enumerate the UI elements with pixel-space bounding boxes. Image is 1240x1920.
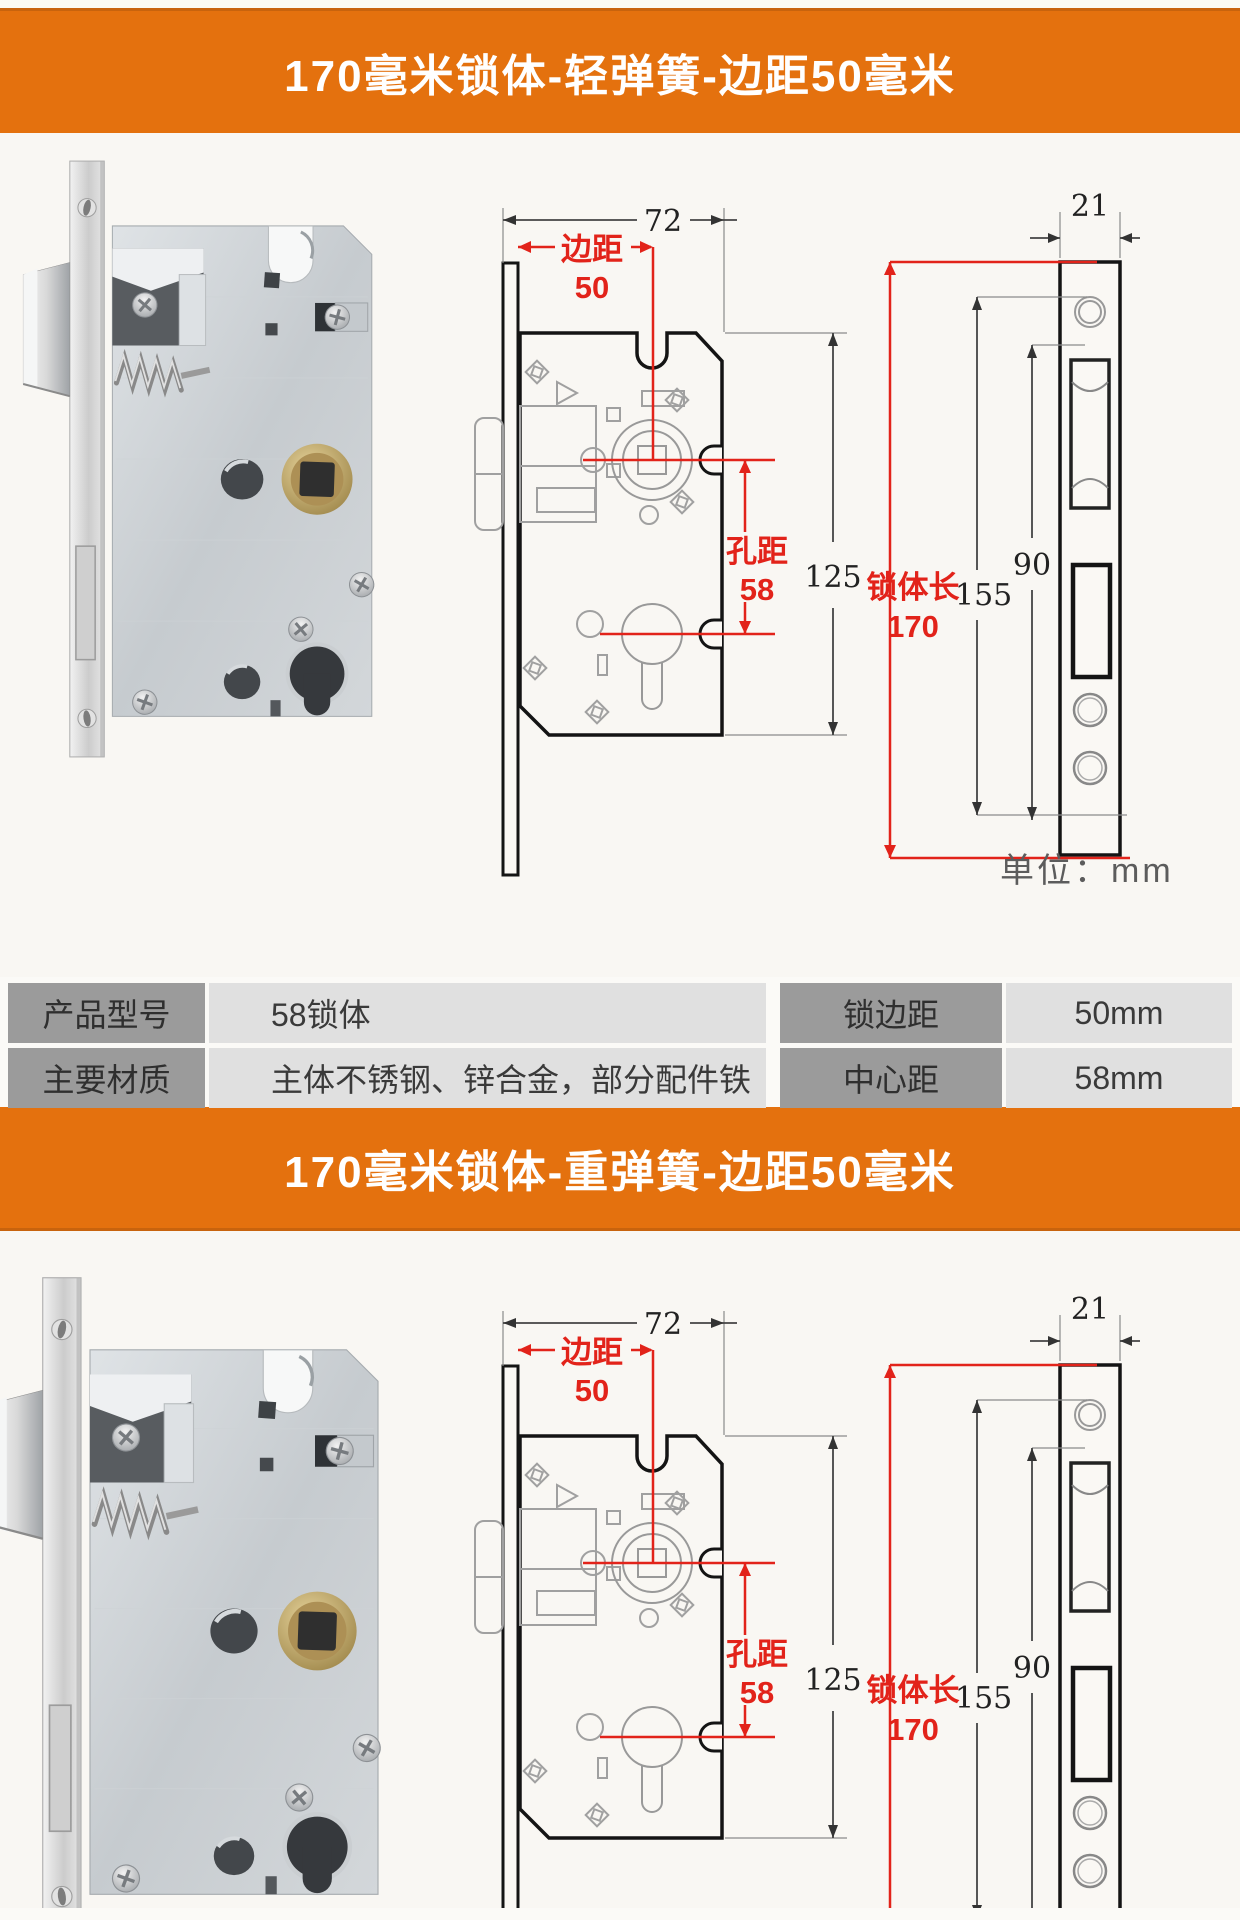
dim-hole-distance: 孔距 58 bbox=[583, 460, 788, 634]
cylinder-drawing bbox=[622, 1707, 682, 1812]
label-plate-length: 155 bbox=[955, 578, 1012, 613]
label-total-width: 72 bbox=[644, 1307, 682, 1342]
screw-hole-top-icon bbox=[78, 199, 96, 217]
label-body-height: 125 bbox=[804, 560, 861, 595]
section-title: 170毫米锁体-轻弹簧-边距50毫米 bbox=[284, 40, 956, 104]
screw-hole-top-icon bbox=[52, 1319, 72, 1339]
label-hole-value: 58 bbox=[740, 572, 774, 607]
latch-bolt bbox=[0, 1390, 43, 1539]
lock-body bbox=[112, 226, 378, 718]
banner-light-spring: 170毫米锁体-轻弹簧-边距50毫米 bbox=[0, 8, 1240, 133]
follower-hole bbox=[278, 1592, 357, 1671]
label-total-width: 72 bbox=[644, 204, 682, 239]
side-view: 21 锁体长 170 bbox=[867, 189, 1141, 858]
spec-value-edge-distance: 50mm bbox=[1006, 983, 1232, 1043]
banner-heavy-spring: 170毫米锁体-重弹簧-边距50毫米 bbox=[0, 1107, 1240, 1231]
label-edge-value: 50 bbox=[575, 270, 609, 305]
section-light-spring: 72 边距 50 bbox=[0, 133, 1240, 977]
label-plate-length: 155 bbox=[955, 1681, 1012, 1716]
label-body-length-value: 170 bbox=[887, 609, 939, 644]
label-plate-width: 21 bbox=[1071, 1292, 1109, 1327]
dim-plate-width: 21 bbox=[1030, 189, 1140, 258]
side-faceplate bbox=[1060, 1365, 1120, 1908]
spec-value-model: 58锁体 bbox=[209, 983, 766, 1043]
front-faceplate bbox=[503, 263, 518, 875]
deadbolt-slot bbox=[50, 1705, 71, 1831]
table-spacer bbox=[770, 1048, 776, 1108]
follower-hole bbox=[282, 444, 353, 515]
spec-value-material: 主体不锈钢、锌合金，部分配件铁 bbox=[209, 1048, 766, 1108]
label-body-length: 锁体长 bbox=[867, 570, 960, 605]
label-hole-span: 90 bbox=[1013, 1651, 1051, 1686]
label-hole: 孔距 bbox=[726, 534, 788, 569]
front-view: 72 边距 50 孔距 bbox=[475, 1307, 862, 1908]
screw-hole-bottom-icon bbox=[78, 709, 96, 727]
section-title: 170毫米锁体-重弹簧-边距50毫米 bbox=[284, 1136, 956, 1200]
spec-label-model: 产品型号 bbox=[8, 983, 205, 1043]
faceplate bbox=[70, 161, 104, 757]
spindle-hole bbox=[210, 1609, 257, 1654]
label-edge: 边距 bbox=[561, 1335, 623, 1370]
side-view: 21 锁体长 170 15 bbox=[867, 1292, 1141, 1908]
front-body-outline bbox=[520, 333, 722, 735]
spec-table: 产品型号 58锁体 锁边距 50mm 主要材质 主体不锈钢、锌合金，部分配件铁 … bbox=[0, 977, 1240, 1107]
label-body-length: 锁体长 bbox=[867, 1673, 960, 1708]
lock-product-photo bbox=[15, 155, 380, 763]
lock-product-photo bbox=[0, 1271, 387, 1908]
faceplate bbox=[43, 1278, 81, 1908]
dim-plate-width: 21 bbox=[1030, 1292, 1140, 1361]
screw-hole-bottom-icon bbox=[52, 1886, 72, 1906]
dim-hole-distance: 孔距 58 bbox=[583, 1563, 788, 1737]
deadbolt-slot bbox=[76, 546, 95, 659]
label-hole: 孔距 bbox=[726, 1637, 788, 1672]
label-hole-span: 90 bbox=[1013, 548, 1051, 583]
technical-diagram: 72 边距 50 孔距 bbox=[385, 1253, 1140, 1908]
front-view: 72 边距 50 bbox=[475, 204, 862, 875]
top-strip bbox=[0, 0, 1240, 8]
label-hole-value: 58 bbox=[740, 1675, 774, 1710]
dim-total-width: 72 bbox=[503, 204, 737, 332]
label-plate-width: 21 bbox=[1071, 189, 1109, 224]
spec-label-edge-distance: 锁边距 bbox=[780, 983, 1002, 1043]
front-body-outline bbox=[520, 1436, 722, 1838]
technical-diagram: 72 边距 50 bbox=[385, 150, 1140, 880]
table-spacer bbox=[770, 983, 776, 1043]
section-heavy-spring: 72 边距 50 孔距 bbox=[0, 1231, 1240, 1908]
latch-bolt bbox=[23, 262, 70, 396]
spec-value-center-distance: 58mm bbox=[1006, 1048, 1232, 1108]
unit-note: 单位：mm bbox=[1000, 843, 1174, 892]
front-faceplate bbox=[503, 1366, 518, 1908]
cylinder-drawing bbox=[622, 604, 682, 709]
spindle-hole bbox=[221, 459, 264, 500]
lock-body bbox=[90, 1350, 385, 1896]
label-body-height: 125 bbox=[804, 1663, 861, 1698]
page: 170毫米锁体-轻弹簧-边距50毫米 bbox=[0, 0, 1240, 1920]
label-body-length-value: 170 bbox=[887, 1712, 939, 1747]
side-faceplate bbox=[1060, 262, 1120, 855]
spec-label-material: 主要材质 bbox=[8, 1048, 205, 1108]
dim-total-width: 72 bbox=[503, 1307, 737, 1435]
label-edge: 边距 bbox=[561, 232, 623, 267]
label-edge-value: 50 bbox=[575, 1373, 609, 1408]
spec-label-center-distance: 中心距 bbox=[780, 1048, 1002, 1108]
